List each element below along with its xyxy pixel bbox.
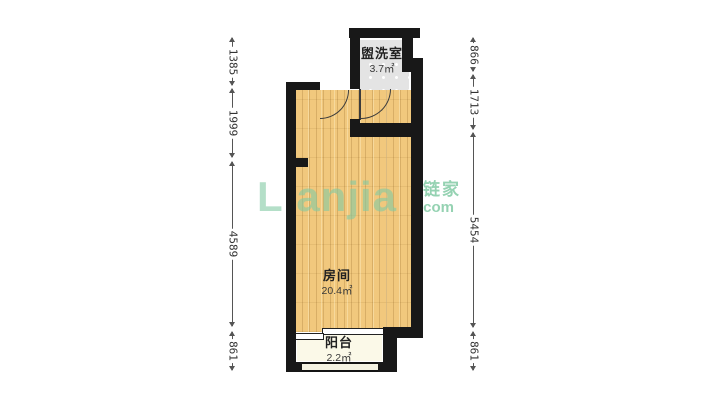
right-wall	[411, 72, 423, 338]
arrow-up-icon	[470, 74, 476, 79]
dimension-right-2: 1713	[467, 74, 480, 130]
lianjia-watermark-cn: 链家	[423, 181, 461, 198]
arrow-down-icon	[470, 67, 476, 72]
dimension-left-4: 861	[226, 331, 239, 371]
dimension-value: 4589	[227, 229, 238, 260]
arrow-up-icon	[470, 37, 476, 42]
dimension-value: 861	[468, 339, 479, 363]
washroom-name: 盥洗室	[350, 47, 414, 62]
washroom-door-leaf	[359, 89, 361, 120]
left-wall	[286, 82, 296, 372]
floorplan-canvas: Lianjia 链家 .com 盥洗室 3.7㎡ 房间 20.4㎡ 阳台 2.2…	[0, 0, 710, 400]
main-room-label: 房间 20.4㎡	[300, 269, 374, 297]
dimension-right-4: 861	[467, 331, 480, 371]
balcony-name: 阳台	[302, 336, 376, 351]
dimension-value: 866	[468, 43, 479, 67]
dimension-value: 5454	[468, 215, 479, 246]
arrow-down-icon	[229, 322, 235, 327]
dimension-left-3: 4589	[226, 161, 239, 327]
arrow-down-icon	[470, 323, 476, 328]
arrow-up-icon	[229, 37, 235, 42]
washroom-top-wall	[349, 28, 420, 38]
main-room-area: 20.4㎡	[300, 285, 374, 297]
arrow-up-icon	[229, 161, 235, 166]
dimension-value: 1385	[227, 46, 238, 77]
arrow-down-icon	[229, 81, 235, 86]
wall-stub	[295, 158, 308, 167]
arrow-up-icon	[229, 88, 235, 93]
balcony-area: 2.2㎡	[302, 352, 376, 364]
lianjia-watermark-suffix: .com	[419, 200, 454, 215]
balcony-label: 阳台 2.2㎡	[302, 336, 376, 364]
dimension-left-1: 1385	[226, 37, 239, 86]
washroom-label: 盥洗室 3.7㎡	[350, 47, 414, 75]
arrow-down-icon	[470, 125, 476, 130]
dimension-value: 1713	[468, 87, 479, 118]
balcony-bottom-right-corner	[378, 362, 397, 372]
arrow-up-icon	[229, 331, 235, 336]
dimension-left-2: 1999	[226, 88, 239, 158]
washroom-bottom-wall	[350, 123, 423, 137]
arrow-down-icon	[470, 366, 476, 371]
arrow-up-icon	[470, 331, 476, 336]
lianjia-watermark-logo: Lianjia	[257, 176, 397, 218]
sliding-door-panel-right	[322, 328, 387, 335]
dimension-value: 1999	[227, 108, 238, 139]
dimension-value: 861	[227, 339, 238, 363]
dimension-right-3: 5454	[467, 132, 480, 328]
arrow-down-icon	[229, 153, 235, 158]
arrow-down-icon	[229, 366, 235, 371]
arrow-up-icon	[470, 132, 476, 137]
dimension-right-1: 866	[467, 37, 480, 72]
washroom-area: 3.7㎡	[350, 63, 414, 75]
balcony-bottom-left-corner	[286, 362, 302, 372]
main-room-name: 房间	[300, 269, 374, 284]
